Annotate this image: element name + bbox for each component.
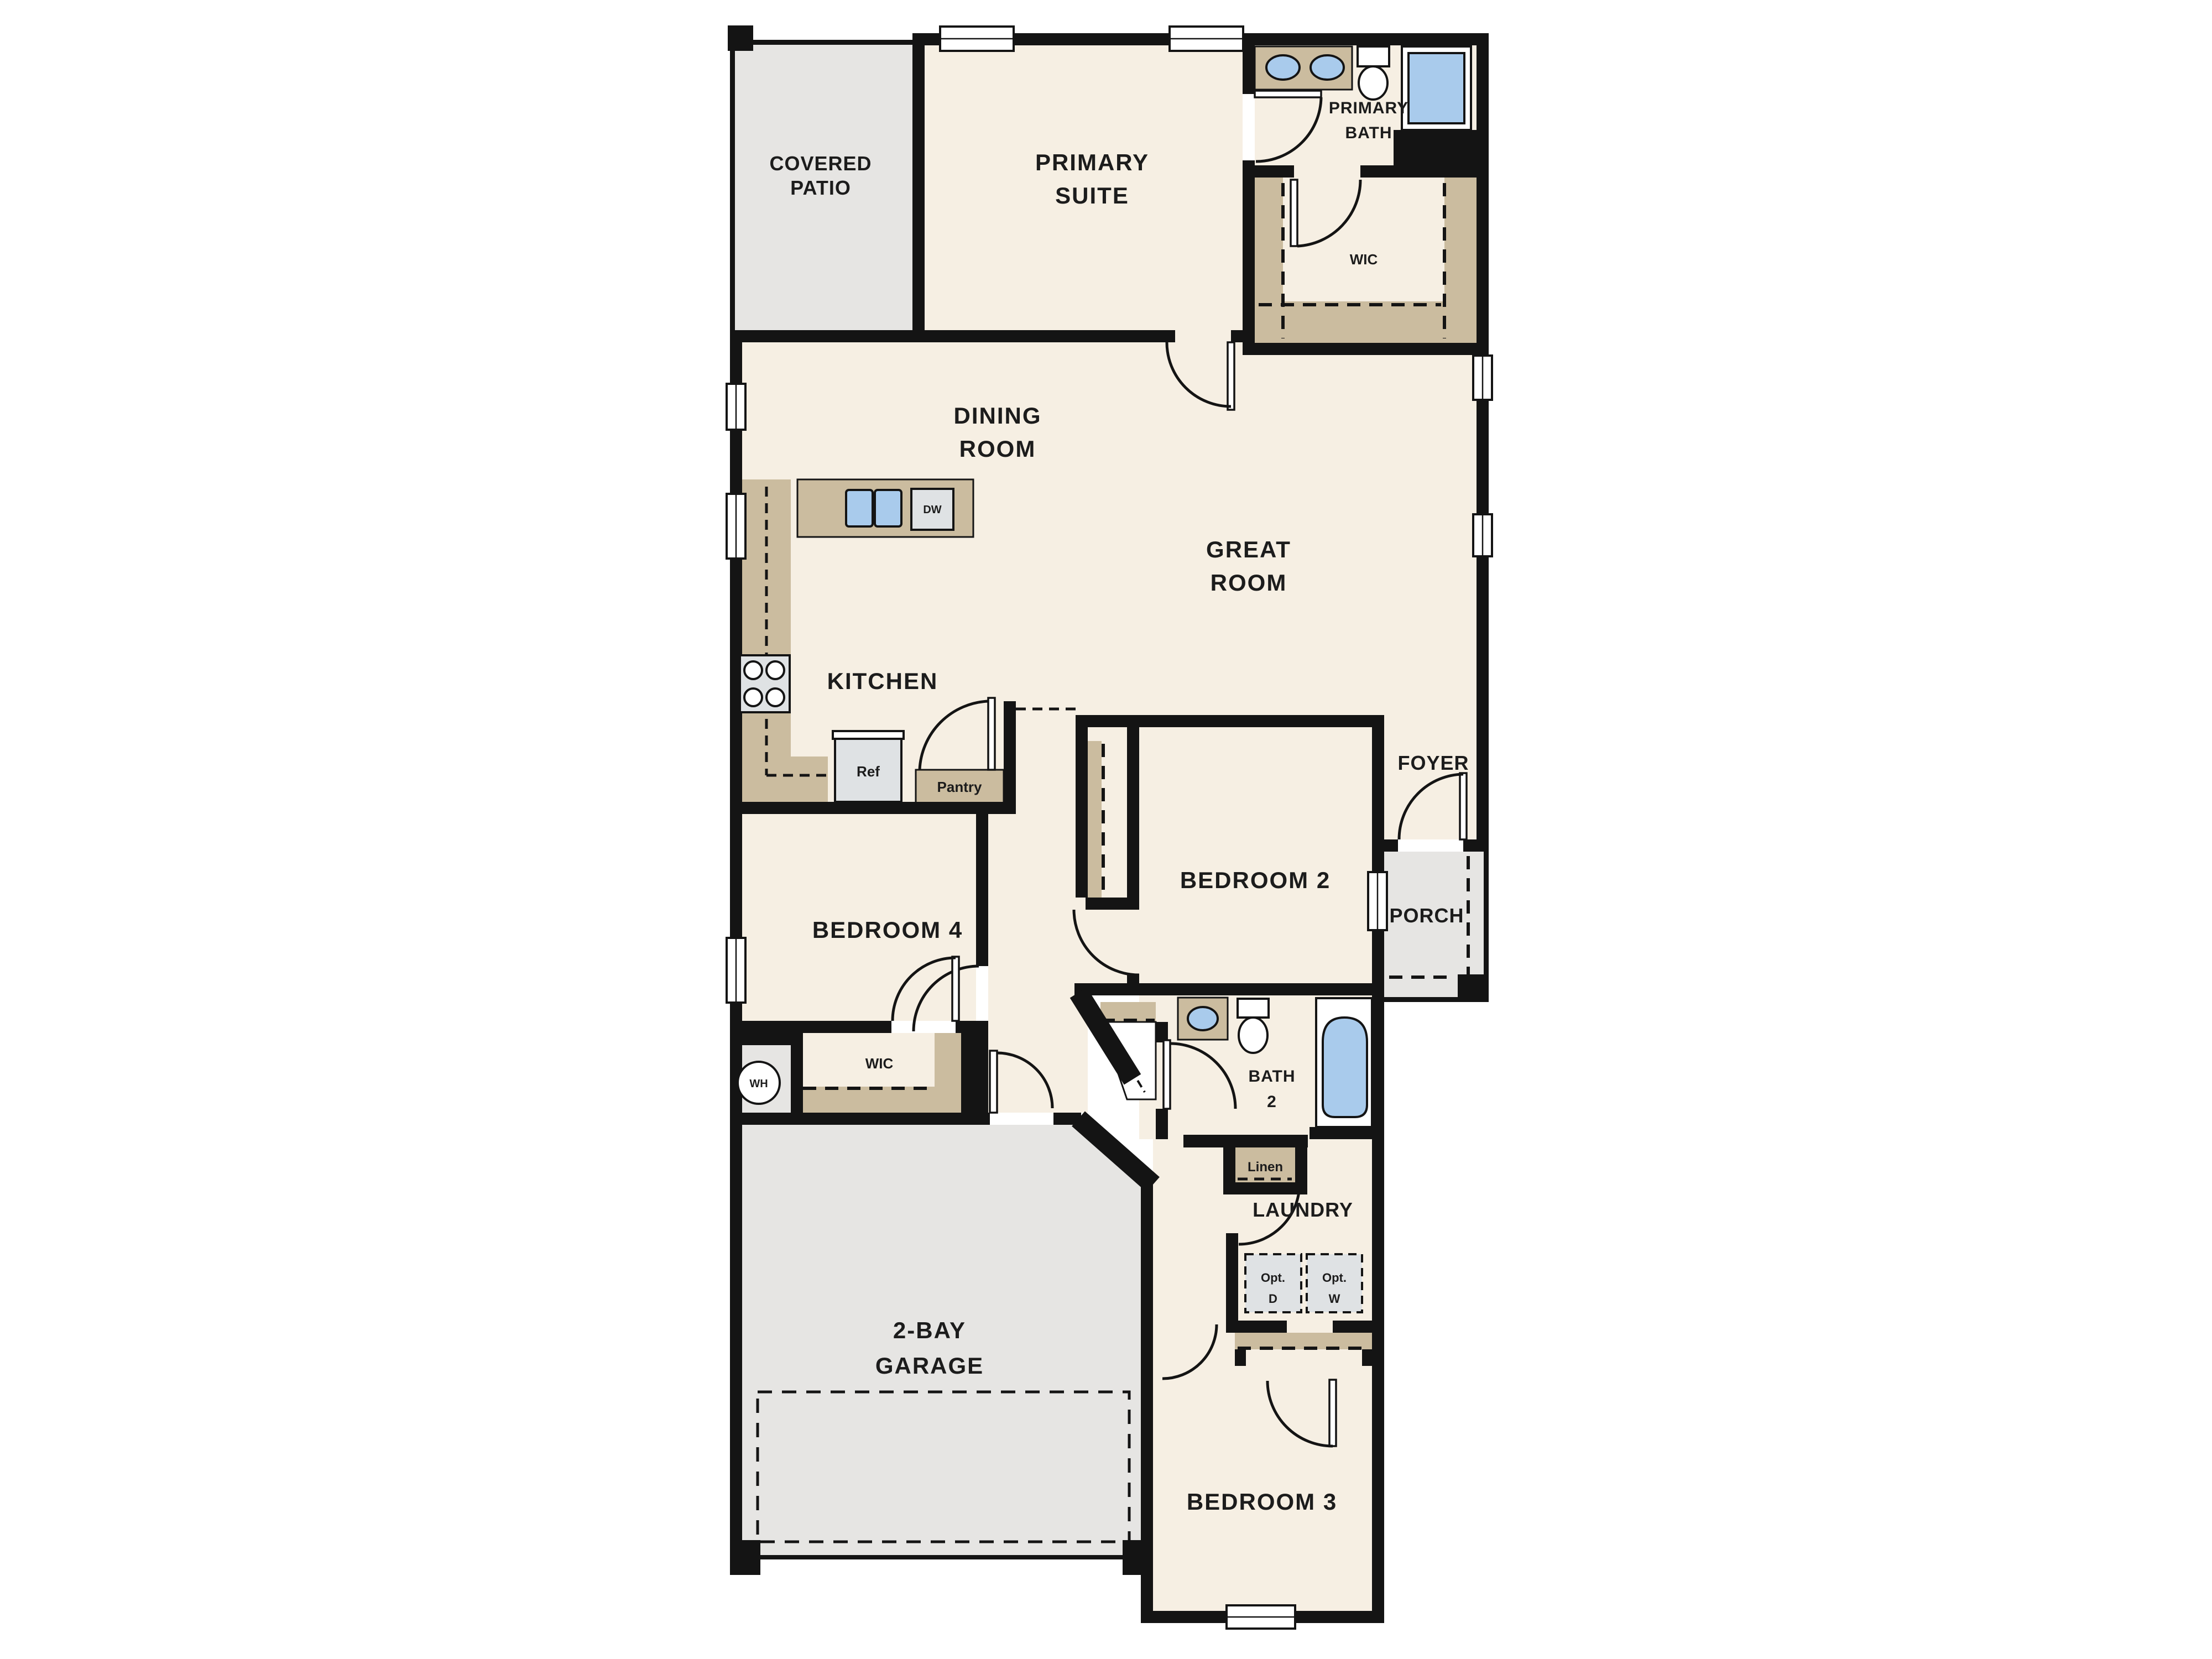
label-dining-2: ROOM [959, 436, 1036, 462]
shower-primary [1408, 53, 1464, 123]
patio-post [728, 25, 753, 51]
label-garage-1: 2-BAY [893, 1317, 966, 1343]
wall-shower-step [1394, 130, 1489, 178]
label-great-2: ROOM [1211, 570, 1287, 596]
label-primary-wic: WIC [1350, 251, 1378, 268]
sink-primary-2 [1311, 55, 1344, 80]
hall-floor [988, 701, 1088, 1113]
wall-linen-bottom [1223, 1182, 1307, 1194]
label-water-heater: WH [749, 1078, 768, 1090]
label-opt-washer-2: W [1329, 1292, 1340, 1306]
door-leaf-bedroom3 [1329, 1380, 1336, 1446]
door-leaf-kitchen-hall [988, 698, 995, 770]
kitchen-sink-1 [846, 490, 873, 526]
door-leaf-primary-bath [1255, 91, 1321, 97]
wall-wh-nook-top [742, 1033, 791, 1045]
door-leaf-bath2 [1164, 1040, 1170, 1109]
door-leaf-entry [1460, 773, 1467, 839]
wall-bedroom2-closet-right [1127, 727, 1139, 898]
bedroom4-wic-shelf-right [935, 1033, 961, 1113]
porch-post [1458, 974, 1489, 1002]
label-kitchen: KITCHEN [827, 668, 938, 694]
label-opt-dryer-2: D [1269, 1292, 1277, 1306]
toilet-primary-bowl [1359, 66, 1387, 100]
kitchen-sink-2 [875, 490, 901, 526]
label-covered-patio-1: COVERED [769, 152, 872, 175]
label-laundry: LAUNDRY [1253, 1198, 1353, 1221]
label-opt-washer-1: Opt. [1322, 1271, 1347, 1285]
wall-bath-left-upper [1243, 45, 1255, 94]
door-leaf-primary-suite [1228, 342, 1234, 410]
label-primary-bath-2: BATH [1345, 124, 1392, 142]
label-bedroom3: BEDROOM 3 [1187, 1489, 1337, 1515]
label-covered-patio-2: PATIO [790, 176, 851, 199]
wall-garage-top-left [730, 1113, 990, 1125]
wall-kitchen-bottom [730, 802, 916, 814]
label-refrigerator: Ref [857, 763, 880, 780]
label-dishwasher: DW [923, 504, 941, 516]
label-foyer: FOYER [1397, 752, 1469, 774]
label-pantry: Pantry [937, 779, 982, 795]
wall-bedroom4-right [976, 814, 988, 966]
wall-bedroom2-bottom [1074, 983, 1384, 995]
wall-bed3-closet-jamb-left [1235, 1349, 1246, 1366]
label-bedroom2: BEDROOM 2 [1180, 867, 1331, 893]
wall-bath2-left-lower [1156, 1109, 1168, 1139]
door-leaf-bedroom4-wic [952, 957, 959, 1021]
wall-wic-bottom [1243, 343, 1489, 355]
wall-bedroom2-closet-front [1086, 898, 1139, 910]
stove-burner-1 [744, 661, 762, 679]
label-bath2-1: BATH [1248, 1067, 1295, 1086]
label-primary-bath-1: PRIMARY [1329, 99, 1408, 117]
label-garage-2: GARAGE [875, 1353, 984, 1379]
wall-bedroom2-top [1076, 715, 1384, 727]
kitchen-counter-bottom [742, 757, 828, 802]
stove-burner-3 [744, 688, 762, 706]
wall-laundry-bottom-left [1226, 1321, 1287, 1333]
garage-post-left [730, 1540, 760, 1575]
wall-pantry-right [1004, 701, 1016, 802]
floor-plan-page: COVERED PATIO PRIMARY SUITE PRIMARY BATH… [0, 0, 2212, 1659]
label-opt-dryer-1: Opt. [1261, 1271, 1285, 1285]
label-porch: PORCH [1389, 904, 1464, 927]
wall-under-pantry [911, 802, 1016, 814]
label-great-1: GREAT [1206, 536, 1291, 562]
ref-cabinet [833, 731, 904, 739]
wall-wic2-right [961, 1033, 988, 1113]
label-bedroom4: BEDROOM 4 [812, 917, 963, 943]
sink-primary-1 [1266, 55, 1300, 80]
door-leaf-primary-wic [1291, 180, 1297, 246]
label-primary-suite-2: SUITE [1055, 182, 1129, 208]
toilet-bath2-bowl [1239, 1018, 1267, 1053]
wall-wic-left [1243, 178, 1255, 355]
wall-foyer-bottom-right [1463, 839, 1489, 852]
wall-wic2-left [791, 1033, 803, 1113]
wall-under-tub [1310, 1127, 1384, 1139]
label-dining-1: DINING [954, 403, 1042, 429]
sink-bath2 [1188, 1007, 1218, 1030]
wall-foyer-bottom-left [1372, 839, 1398, 852]
garage-door-line [760, 1555, 1123, 1559]
label-primary-suite-1: PRIMARY [1035, 149, 1149, 175]
stove-burner-2 [766, 661, 784, 679]
floor-plan-drawing: COVERED PATIO PRIMARY SUITE PRIMARY BATH… [0, 0, 2212, 1659]
patio-wall-top [730, 40, 918, 45]
wall-wic-top-left [1243, 165, 1294, 178]
garage-post-right [1123, 1540, 1153, 1575]
label-bedroom4-wic: WIC [865, 1055, 894, 1072]
wall-linen-top [1183, 1135, 1308, 1147]
wall-laundry-left [1226, 1233, 1238, 1322]
wall-suite-bottom [730, 330, 1175, 342]
door-leaf-garage-entry [990, 1051, 997, 1113]
patio-wall-left [730, 40, 735, 330]
toilet-bath2-tank [1238, 999, 1269, 1018]
wall-bedroom4-bottom-right [956, 1021, 988, 1033]
label-bath2-2: 2 [1267, 1093, 1277, 1111]
bedroom2-closet-shelf [1088, 741, 1102, 898]
tub [1323, 1018, 1367, 1117]
label-linen: Linen [1248, 1160, 1283, 1175]
wall-hall-bedroom2 [1076, 727, 1088, 898]
stove-burner-4 [766, 688, 784, 706]
wall-patio-suite [912, 33, 925, 342]
wall-bed3-closet-jamb-right [1362, 1349, 1373, 1366]
wall-laundry-bottom-right [1333, 1321, 1384, 1333]
toilet-primary-tank [1358, 46, 1389, 66]
wall-bedroom4-bottom-left [742, 1021, 891, 1033]
